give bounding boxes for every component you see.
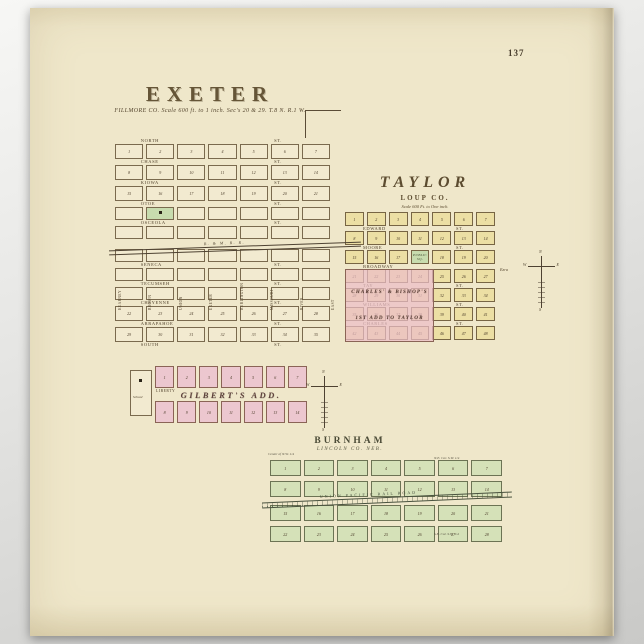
compass-n: N [539,249,542,254]
town-block: 34 [476,288,495,302]
town-block: 8 [155,401,174,423]
town-block: 21 [302,186,330,201]
town-block: 19 [404,505,435,521]
town-block: 2 [177,366,196,388]
street-name: NORTH [141,138,159,143]
town-block: 4 [371,460,402,476]
town-block: 39 [432,307,451,321]
block-number: 23 [317,532,321,537]
compass-line [311,386,338,387]
block-number: 14 [295,410,299,415]
town-block: 6 [438,460,469,476]
block-number: 24 [189,311,193,316]
block-number: 16 [158,191,162,196]
town-block: 4 [411,212,430,226]
block-number: 20 [451,511,455,516]
block-row: 22232425262728 [270,526,502,542]
block-number: 11 [418,236,422,241]
town-block: 31 [177,327,205,342]
block-number: 28 [314,311,318,316]
block-number: 40 [462,312,466,317]
block-number: 7 [486,466,488,471]
town-block [115,268,143,281]
town-block: 13 [266,401,285,423]
town-block: 46 [432,326,451,340]
taylor-plat-map: CHARLES' & BISHOP'S 1ST ADD TO TAYLOR 12… [345,212,495,340]
town-block [302,268,330,281]
compass-e: E [340,382,342,387]
compass-w: W [306,382,309,387]
avenue-label: BURLINGTON [240,283,244,310]
town-block: 3 [177,144,205,159]
block-number: 4 [221,149,223,154]
block-number: 13 [273,410,277,415]
town-block [208,268,236,281]
town-block: 19 [454,250,473,264]
town-block: 13 [454,231,473,245]
block-number: 5 [253,149,255,154]
block-number: 18 [220,191,224,196]
block-number: 8 [164,410,166,415]
street-suffix: ST. [274,281,282,286]
town-block: 8 [270,481,301,497]
avenue-label: EAST [331,299,335,310]
block-number: 7 [315,149,317,154]
town-block: 25 [371,526,402,542]
town-block: 26 [454,269,473,283]
town-block: 33 [240,327,268,342]
town-block: 28 [302,306,330,321]
block-number: 17 [350,511,354,516]
town-block: 26 [404,526,435,542]
town-block: 14 [302,165,330,180]
street-suffix: ST. [274,321,282,326]
charles-bishops-addition: CHARLES' & BISHOP'S 1ST ADD TO TAYLOR [345,269,434,342]
town-block: 3 [389,212,408,226]
block-row [115,207,330,220]
block-number: 25 [220,311,224,316]
avenue-label: EXETER [209,294,213,310]
town-block: 9 [367,231,386,245]
exeter-subtitle: FILLMORE CO. Scale 600 ft. to 1 inch. Se… [70,108,350,114]
block-number: 22 [283,532,287,537]
block-number: 21 [314,191,318,196]
block-number: 27 [451,532,455,537]
street-name: TECUMSEH [141,281,170,286]
road-ticks [321,402,328,426]
compass-s: S [539,307,541,312]
street-suffix: ST. [274,342,282,347]
block-number: 17 [189,191,193,196]
block-number: 2 [186,375,188,380]
block-number: 1 [128,149,130,154]
town-block [271,249,299,262]
town-block: 40 [454,307,473,321]
town-block: 9 [177,401,196,423]
town-block: 32 [432,288,451,302]
block-number: 32 [440,293,444,298]
block-number: 2 [159,149,161,154]
block-number: 25 [384,532,388,537]
town-block: 12 [244,401,263,423]
town-block [177,226,205,239]
block-number: 3 [190,149,192,154]
block-number: 7 [296,375,298,380]
block-number: 33 [462,293,466,298]
street-name: SOUTH [141,342,159,347]
taylor-title: TAYLOR [345,174,505,192]
town-block [208,226,236,239]
block-row: 891011121314 [345,231,495,245]
town-block: 18 [432,250,451,264]
avenue-label: BROWN [148,295,152,310]
town-block: 5 [240,144,268,159]
block-row: 15161718192021 [115,186,330,201]
town-block: 6 [454,212,473,226]
block-number: 17 [396,255,400,260]
town-block: 32 [208,327,236,342]
town-block: 3 [199,366,218,388]
block-row: 891011121314 [115,165,330,180]
section-line [305,110,341,111]
town-block: 29 [115,327,143,342]
block-row [115,268,330,281]
town-block: 16 [304,505,335,521]
town-block: 4 [208,144,236,159]
town-block: 17 [337,505,368,521]
town-block: 20 [271,186,299,201]
block-number: 23 [158,311,162,316]
town-block [302,207,330,220]
ezra-label: Ezra [500,267,508,272]
block-row: 1234567 [115,144,330,159]
block-number: 4 [230,375,232,380]
block-number: 3 [351,466,353,471]
block-number: 13 [451,487,455,492]
block-row: 1234567 [270,460,502,476]
block-number: 1 [353,217,355,222]
block-number: 26 [462,274,466,279]
town-block [146,226,174,239]
town-block [271,226,299,239]
town-block: 10 [199,401,218,423]
town-block: 10 [177,165,205,180]
block-label: PUBLIC SQ. [413,253,427,261]
street-suffix: ST. [274,159,282,164]
school-label: School [133,395,143,399]
town-block [302,249,330,262]
town-block: 22 [270,526,301,542]
block-number: 9 [159,170,161,175]
town-block [177,268,205,281]
compass-rose: N E S W [305,370,345,432]
block-number: 12 [418,487,422,492]
town-block: 11 [208,165,236,180]
town-block [115,226,143,239]
town-block [302,226,330,239]
block-number: 9 [375,236,377,241]
block-number: 13 [283,170,287,175]
block-number: 24 [350,532,354,537]
town-block: 18 [208,186,236,201]
town-block: 18 [371,505,402,521]
block-number: 4 [385,466,387,471]
street-name: CHASE [141,159,159,164]
taylor-county: LOUP CO. [345,194,505,202]
poster-edge-shadow [588,8,614,636]
town-block: 8 [115,165,143,180]
town-block: 13 [271,165,299,180]
street-name: OTOE [141,201,155,206]
liberty-street-label: LIBERTY [156,389,175,393]
town-block: 20 [438,505,469,521]
street-name: CHEYENNE [141,300,170,305]
corner-note: N.E. Cor. S.W. 1/4 [434,456,459,461]
block-row: 29303132333435 [115,327,330,342]
block-number: 41 [484,312,488,317]
block-row: 15161718192021 [270,505,502,521]
block-number: 28 [485,532,489,537]
compass-w: W [523,262,526,267]
town-block: 47 [454,326,473,340]
block-number: 26 [418,532,422,537]
town-block: 2 [367,212,386,226]
street-name: KIOWA [141,180,159,185]
exeter-title: EXETER [90,82,330,107]
block-number: 8 [128,170,130,175]
block-number: 6 [463,217,465,222]
street-suffix: ST. [274,220,282,225]
block-row: 1234567 [345,212,495,226]
block-number: 7 [485,217,487,222]
town-block: 17 [389,250,408,264]
block-number: 6 [274,375,276,380]
town-block: 16 [146,186,174,201]
town-block: 5 [404,460,435,476]
avenue-label: RIVER [300,297,304,310]
town-block [271,268,299,281]
building-square-icon [159,211,162,214]
town-block: 33 [454,288,473,302]
town-block: 17 [177,186,205,201]
block-number: 48 [484,331,488,336]
town-block: 30 [146,327,174,342]
block-row: 891011121314 [155,401,307,423]
town-block: 28 [471,526,502,542]
town-block: 35 [302,327,330,342]
street-name: ARRAPAHOE [141,321,174,326]
town-block: 5 [244,366,263,388]
block-number: 15 [127,191,131,196]
town-block: 27 [476,269,495,283]
town-block: 2 [304,460,335,476]
block-number: 18 [384,511,388,516]
block-number: 29 [127,332,131,337]
gilberts-addition: LIBERTY 1234567GILBERT'S ADD.89101112131… [155,366,307,423]
block-number: 10 [350,487,354,492]
town-block: 1 [115,144,143,159]
compass-e: E [557,262,559,267]
block-number: 2 [318,466,320,471]
town-block: 34 [271,327,299,342]
block-number: 10 [189,170,193,175]
block-number: 16 [317,511,321,516]
block-number: 8 [284,487,286,492]
block-number: 25 [440,274,444,279]
block-number: 14 [484,236,488,241]
street-name: OSCEOLA [141,220,166,225]
block-number: 14 [314,170,318,175]
block-number: 27 [283,311,287,316]
town-block [240,226,268,239]
public-square-block: PUBLIC SQ. [411,250,430,264]
town-block: 12 [432,231,451,245]
block-number: 19 [252,191,256,196]
town-block [271,207,299,220]
town-block [177,207,205,220]
block-number: 3 [397,217,399,222]
road-ticks [538,282,545,306]
compass-n: N [322,369,325,374]
block-number: 19 [418,511,422,516]
public-square-block [146,207,174,220]
block-number: 2 [375,217,377,222]
town-block: 41 [476,307,495,321]
town-block: 7 [302,144,330,159]
compass-line [528,266,555,267]
town-block [146,268,174,281]
street-suffix: ST. [274,300,282,305]
addition-label: GILBERT'S ADD. [155,388,307,401]
town-block [240,207,268,220]
town-block: 16 [367,250,386,264]
block-number: 20 [484,255,488,260]
block-number: 30 [158,332,162,337]
town-block: 5 [432,212,451,226]
block-number: 20 [283,191,287,196]
burnham-plat-map: UNION PACIFIC RAIL ROAD 1234567891011121… [270,460,502,542]
page-number: 137 [508,48,525,58]
town-block [115,207,143,220]
town-block: 23 [304,526,335,542]
town-block [208,207,236,220]
town-block: 15 [345,250,364,264]
school-block: School [130,370,152,416]
town-block: 14 [476,231,495,245]
addition-line2: 1ST ADD TO TAYLOR [355,316,423,321]
street-label: SOUTHST. [115,342,330,348]
town-block: 48 [476,326,495,340]
block-number: 1 [164,375,166,380]
town-block: 1 [270,460,301,476]
building-square-icon [139,379,142,382]
town-block: 7 [476,212,495,226]
town-block: 12 [240,165,268,180]
burnham-title: BURNHAM [260,436,440,446]
town-block [271,287,299,300]
block-number: 12 [251,410,255,415]
block-number: 9 [186,410,188,415]
town-block: 11 [221,401,240,423]
block-number: 10 [207,410,211,415]
town-block: 1 [155,366,174,388]
town-block: 3 [337,460,368,476]
town-block [240,249,268,262]
town-block: 15 [115,186,143,201]
block-number: 16 [374,255,378,260]
exeter-plat-map: B. & M. R. R. NORTHST.1234567CHASEST.891… [115,138,330,348]
compass-s: S [322,427,324,432]
block-number: 39 [440,312,444,317]
block-number: 14 [485,487,489,492]
block-number: 11 [221,170,225,175]
block-number: 46 [440,331,444,336]
block-number: 8 [353,236,355,241]
town-block: 4 [221,366,240,388]
block-number: 35 [314,332,318,337]
block-number: 5 [441,217,443,222]
street-suffix: ST. [274,138,282,143]
town-block: 2 [146,144,174,159]
block-number: 32 [220,332,224,337]
town-block: 7 [471,460,502,476]
block-number: 13 [462,236,466,241]
block-number: 31 [189,332,193,337]
block-number: 1 [284,466,286,471]
avenue-label: MISSOURI [270,290,274,310]
block-number: 6 [452,466,454,471]
town-block: 11 [411,231,430,245]
block-number: 19 [462,255,466,260]
block-number: 18 [440,255,444,260]
block-number: 34 [484,293,488,298]
town-block: 19 [240,186,268,201]
town-block: 6 [266,366,285,388]
block-number: 3 [208,375,210,380]
block-number: 15 [283,511,287,516]
town-block: 24 [337,526,368,542]
town-block: 27 [271,306,299,321]
block-number: 6 [284,149,286,154]
block-number: 34 [283,332,287,337]
block-number: 11 [229,410,233,415]
town-block [240,268,268,281]
block-number: 10 [396,236,400,241]
block-number: 9 [318,487,320,492]
town-block: 20 [476,250,495,264]
street-suffix: ST. [274,180,282,185]
block-row: 151617PUBLIC SQ.181920 [345,250,495,264]
town-block: 9 [146,165,174,180]
town-block: 10 [389,231,408,245]
town-block: 21 [471,505,502,521]
atlas-page: 137 EXETER FILLMORE CO. Scale 600 ft. to… [30,8,614,636]
block-number: 47 [462,331,466,336]
block-number: 33 [252,332,256,337]
section-line [305,110,306,138]
town-block: 6 [271,144,299,159]
block-row [115,226,330,239]
compass-rose: N E S W [522,250,562,312]
block-row: 1234567 [155,366,307,388]
street-suffix: ST. [274,262,282,267]
street-name: SENECA [141,262,162,267]
block-number: 15 [352,255,356,260]
block-number: 26 [252,311,256,316]
town-block [302,287,330,300]
block-number: 22 [127,311,131,316]
avenue-label: UNION [179,296,183,310]
